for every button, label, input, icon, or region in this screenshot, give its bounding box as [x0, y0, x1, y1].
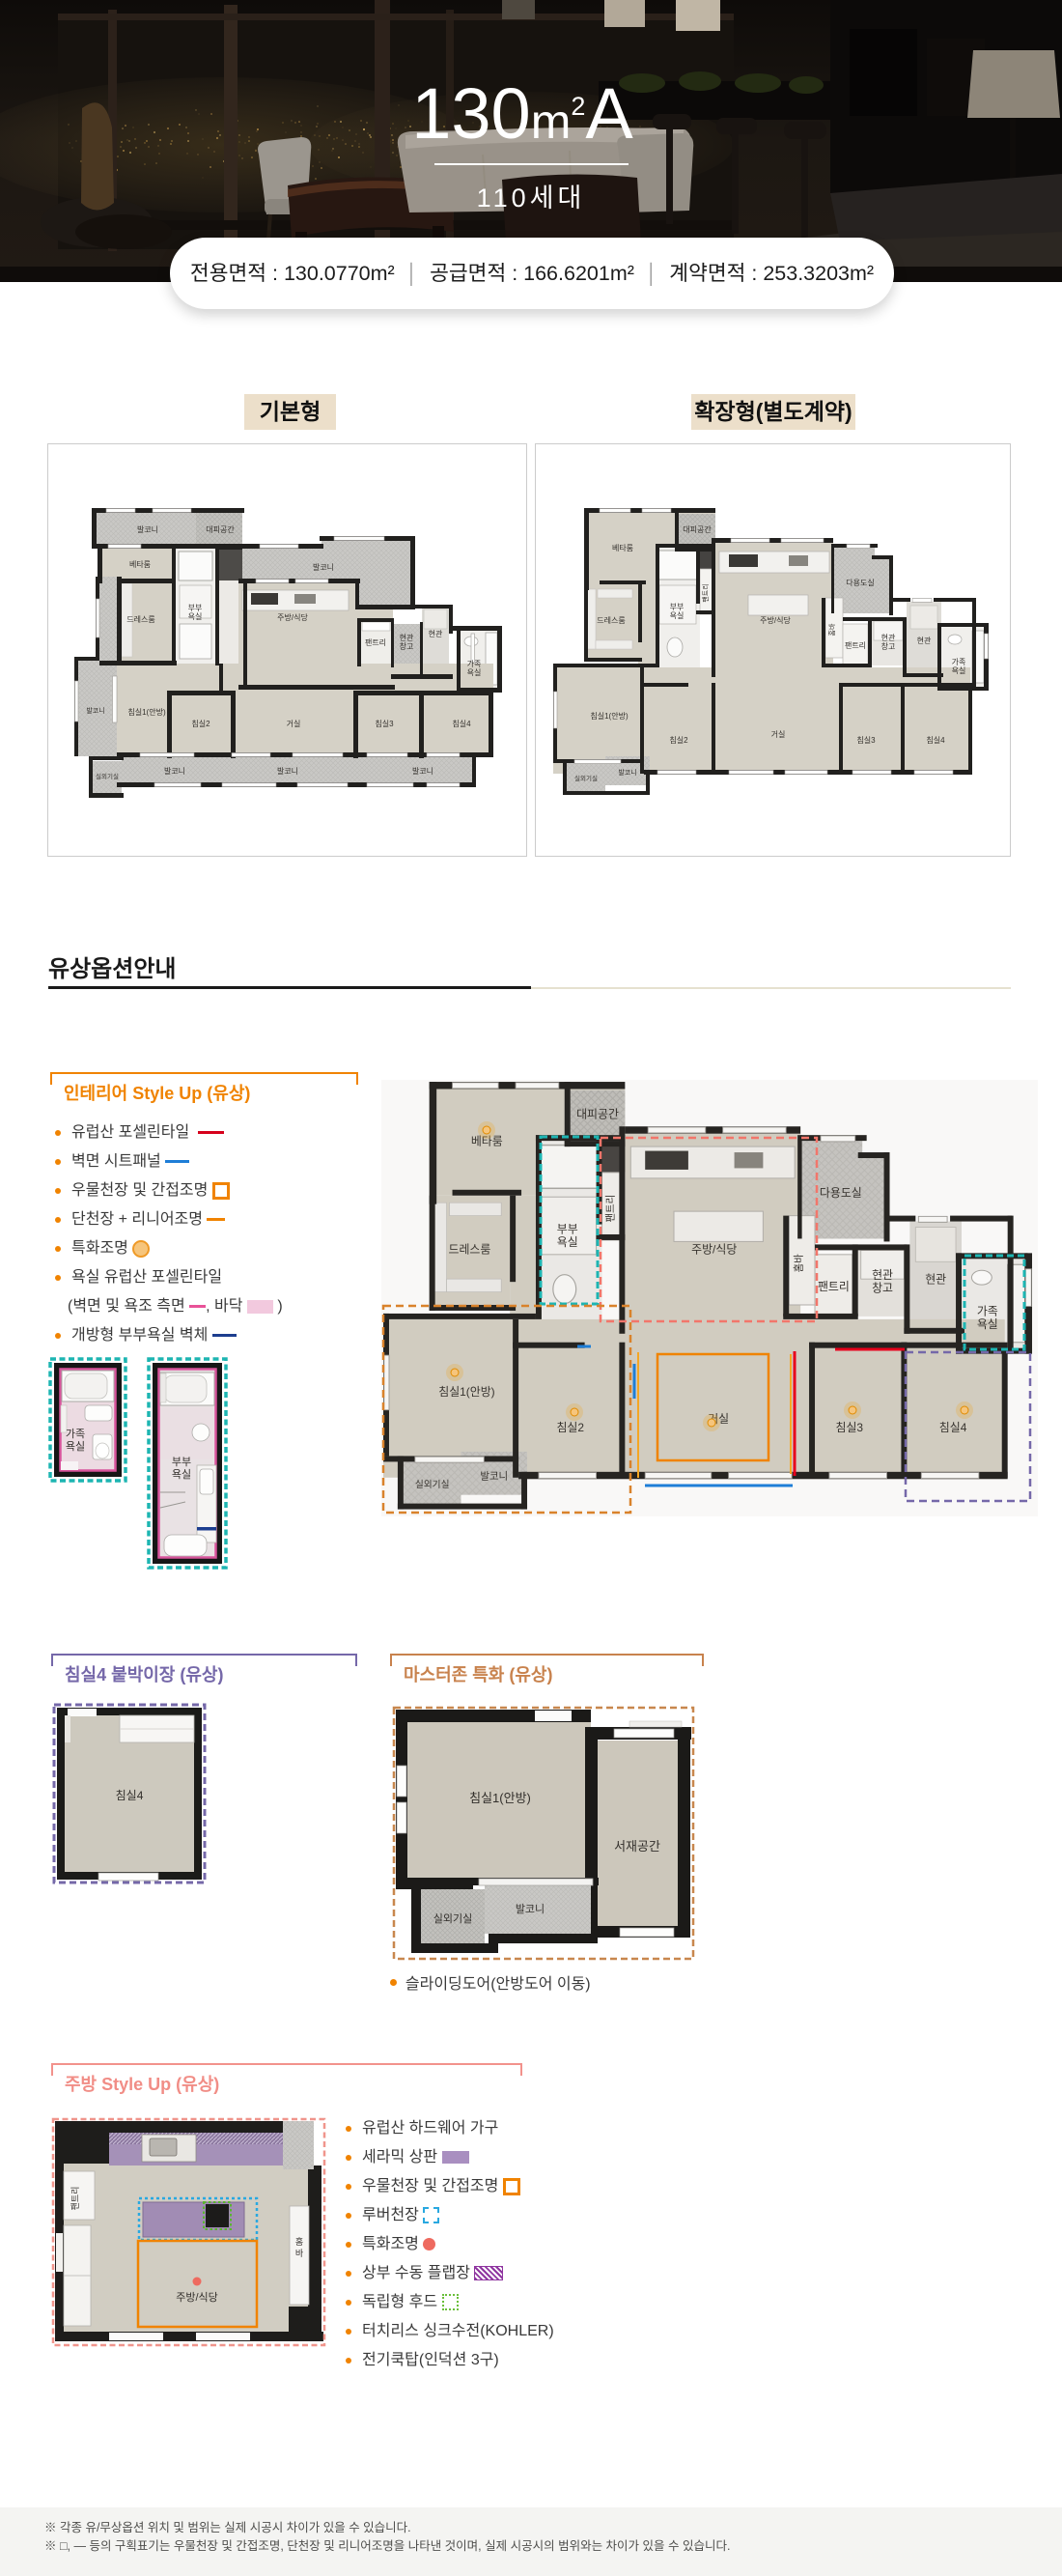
svg-text:드레스룸: 드레스룸	[126, 615, 154, 624]
svg-text:창고: 창고	[400, 642, 414, 651]
svg-text:팬트리: 팬트리	[70, 2187, 80, 2211]
svg-text:팬트리: 팬트리	[365, 638, 386, 647]
svg-text:실외기실: 실외기실	[433, 1912, 472, 1925]
svg-text:가족: 가족	[952, 658, 966, 666]
svg-text:발코니: 발코니	[516, 1903, 545, 1915]
svg-text:침실1(안방): 침실1(안방)	[469, 1791, 531, 1805]
svg-text:침실3: 침실3	[856, 735, 876, 745]
svg-text:거실: 거실	[771, 729, 786, 739]
svg-text:발코니: 발코니	[164, 766, 185, 776]
svg-text:현관: 현관	[429, 629, 443, 638]
svg-text:베타룸: 베타룸	[612, 544, 633, 552]
svg-text:드레스룸: 드레스룸	[597, 616, 625, 625]
svg-text:욕실: 욕실	[66, 1440, 85, 1453]
svg-text:현관: 현관	[917, 636, 932, 645]
svg-text:발코니: 발코니	[618, 768, 636, 777]
svg-text:팬트리: 팬트리	[701, 583, 710, 602]
svg-text:침실4: 침실4	[116, 1789, 144, 1802]
svg-text:홈바: 홈바	[827, 623, 836, 636]
svg-text:부부: 부부	[670, 603, 685, 611]
svg-text:현관: 현관	[400, 633, 414, 642]
svg-text:주방/식당: 주방/식당	[176, 2291, 218, 2304]
svg-text:침실1(안방): 침실1(안방)	[590, 711, 629, 721]
svg-text:대피공간: 대피공간	[206, 524, 235, 534]
svg-text:침실4: 침실4	[452, 719, 471, 728]
svg-text:서재공간: 서재공간	[614, 1839, 660, 1854]
svg-text:부부: 부부	[188, 604, 203, 612]
svg-text:가족: 가족	[66, 1428, 85, 1440]
svg-text:침실4: 침실4	[926, 735, 945, 745]
svg-text:침실2: 침실2	[669, 735, 688, 745]
svg-text:발코니: 발코니	[313, 562, 334, 572]
svg-text:홈: 홈	[295, 2236, 303, 2247]
svg-text:침실2: 침실2	[191, 719, 210, 728]
svg-text:발코니: 발코니	[412, 766, 433, 776]
svg-text:욕실: 욕실	[172, 1468, 191, 1481]
svg-text:창고: 창고	[881, 642, 896, 651]
svg-text:주방/식당: 주방/식당	[760, 615, 791, 625]
svg-text:팬트리: 팬트리	[845, 641, 866, 650]
svg-text:거실: 거실	[287, 719, 301, 728]
svg-text:베타룸: 베타룸	[129, 560, 151, 569]
svg-text:발코니: 발코니	[137, 524, 158, 534]
svg-text:현관: 현관	[881, 633, 896, 642]
svg-text:발코니: 발코니	[86, 706, 104, 715]
svg-text:실외기실: 실외기실	[574, 774, 598, 782]
svg-text:바: 바	[295, 2249, 304, 2258]
svg-text:욕실: 욕실	[952, 665, 966, 675]
svg-text:발코니: 발코니	[277, 766, 298, 776]
svg-text:가족: 가족	[467, 660, 482, 668]
svg-text:대피공간: 대피공간	[683, 524, 712, 534]
svg-text:실외기실: 실외기실	[96, 772, 119, 780]
svg-text:욕실: 욕실	[467, 667, 482, 677]
svg-text:주방/식당: 주방/식당	[277, 612, 308, 622]
svg-text:다용도실: 다용도실	[846, 578, 874, 587]
svg-text:부부: 부부	[172, 1456, 191, 1468]
svg-text:욕실: 욕실	[188, 611, 203, 621]
svg-text:침실3: 침실3	[375, 719, 394, 728]
svg-text:욕실: 욕실	[670, 610, 685, 620]
svg-text:침실1(안방): 침실1(안방)	[127, 707, 166, 717]
